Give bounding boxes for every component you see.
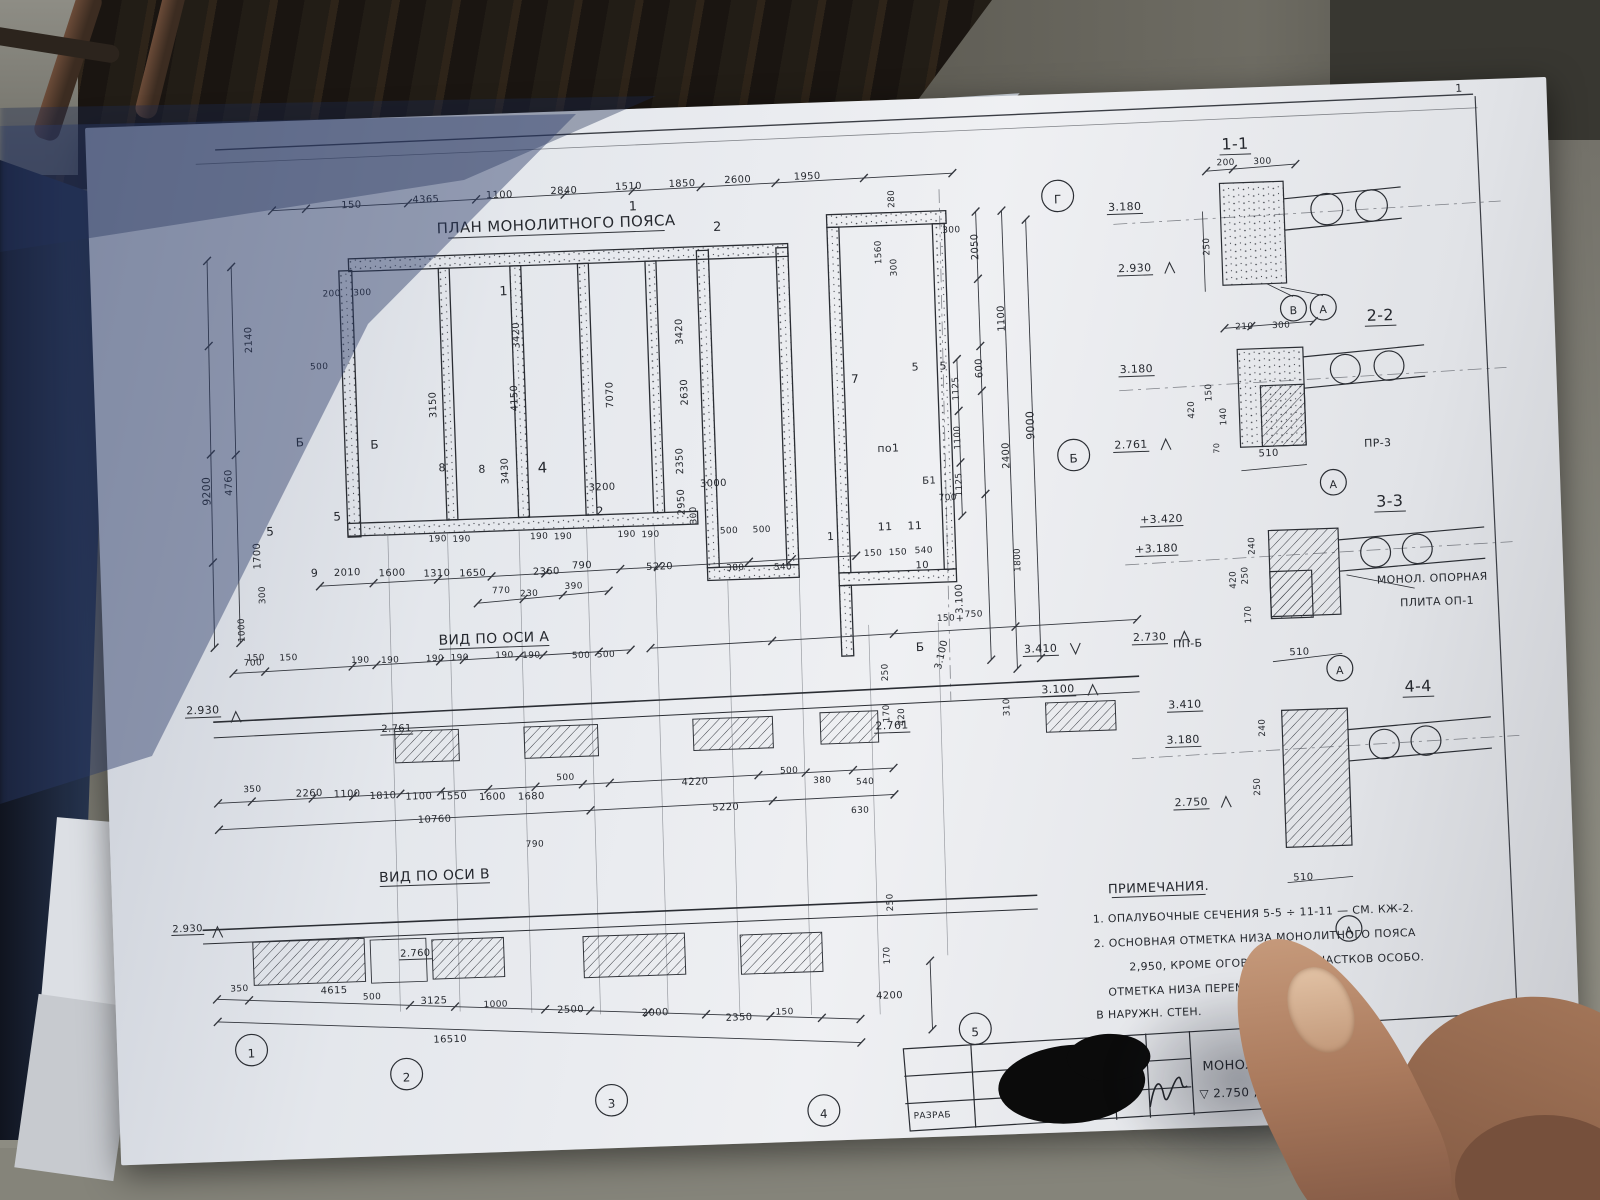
elevation-mark: 2.761 bbox=[875, 718, 909, 732]
elevation-mark: 3.180 bbox=[1166, 733, 1200, 747]
dim-label: 3125 bbox=[420, 995, 447, 1007]
dim-label: 2350 bbox=[674, 448, 686, 475]
dim-label: 1800 bbox=[1013, 548, 1024, 572]
dim-label: 2010 bbox=[334, 567, 361, 579]
dim-label: 3150 bbox=[428, 391, 440, 418]
dim-label: 2350 bbox=[725, 1012, 752, 1024]
photo-of-blueprint: ный конструктивный раствором М 300 bbox=[0, 0, 1600, 1200]
dim-label: 770 bbox=[492, 586, 511, 597]
dim-label: 4150 bbox=[509, 385, 521, 412]
axis-label: Г bbox=[1054, 192, 1062, 206]
cut-mark: Б1 bbox=[922, 475, 936, 486]
dim-label: 300 bbox=[889, 258, 900, 276]
section-title: 1-1 bbox=[1221, 134, 1249, 154]
dim-label: 2840 bbox=[550, 185, 577, 197]
dim-label: 1100 bbox=[996, 305, 1008, 332]
elevation-mark: 3.100 bbox=[933, 639, 951, 671]
dim-label: 170 bbox=[1244, 605, 1255, 623]
axis-label: А bbox=[1336, 664, 1345, 677]
cut-mark: 2 bbox=[713, 220, 722, 235]
elevation-mark: 2.730 bbox=[1133, 630, 1167, 644]
axis-label: А bbox=[1329, 478, 1338, 491]
dim-label: 1125 bbox=[951, 376, 962, 400]
cut-mark: 7 bbox=[851, 372, 859, 386]
dim-label: 1950 bbox=[794, 171, 821, 183]
dim-label: 7070 bbox=[604, 381, 616, 408]
dim-label: 1100 bbox=[953, 425, 964, 449]
dim-label: 1000 bbox=[237, 618, 248, 642]
dim-label: 250 bbox=[1253, 777, 1264, 795]
dim-label: 9200 bbox=[200, 476, 214, 505]
cut-mark: по1 bbox=[877, 441, 899, 455]
dim-label: 300 bbox=[353, 288, 372, 299]
dim-label: 5220 bbox=[646, 561, 673, 573]
cut-mark: Б bbox=[370, 438, 379, 452]
section-title: 3-3 bbox=[1376, 491, 1404, 511]
dim-label: 2400 bbox=[1001, 442, 1013, 469]
cut-mark: 5 bbox=[911, 360, 919, 373]
dim-label: 150 bbox=[1204, 383, 1215, 401]
dim-label: 1680 bbox=[518, 791, 545, 803]
dim-label: 500 bbox=[310, 362, 329, 373]
dim-label: 190 bbox=[351, 655, 370, 666]
elevation-mark: 3.410 bbox=[1168, 697, 1202, 711]
section-title: 2-2 bbox=[1366, 305, 1394, 325]
dim-label: 280 bbox=[887, 190, 898, 208]
dim-label: 150 bbox=[937, 613, 956, 624]
elevation-mark: 2.750 bbox=[1174, 795, 1208, 809]
axis-label: 1 bbox=[247, 1046, 255, 1060]
section-3-3-detail bbox=[1268, 523, 1488, 662]
dim-label: 540 bbox=[914, 546, 933, 557]
dim-label: 1100 bbox=[486, 189, 513, 201]
dim-label: 3200 bbox=[588, 482, 615, 494]
cut-mark: Б bbox=[295, 435, 304, 449]
dim-label: 240 bbox=[1247, 537, 1258, 555]
dim-label: 5220 bbox=[712, 802, 739, 814]
dim-label: 380 bbox=[813, 776, 832, 787]
dim-label: 1560 bbox=[874, 240, 885, 264]
dim-label: 70 bbox=[1212, 443, 1221, 454]
cut-mark: 1 bbox=[827, 530, 835, 543]
axis-label: 3 bbox=[607, 1097, 615, 1111]
label-underline bbox=[1220, 154, 1251, 155]
dim-label: 750 bbox=[964, 610, 983, 621]
dim-label: 210 bbox=[1235, 322, 1254, 333]
dim-label: 1700 bbox=[252, 543, 264, 570]
cut-mark: 8 bbox=[438, 461, 446, 474]
cut-mark: Б bbox=[916, 640, 925, 654]
dim-label: 2600 bbox=[724, 174, 751, 186]
dim-label: 300 bbox=[942, 225, 961, 236]
dim-label: 190 bbox=[426, 654, 445, 665]
dim-label: 4220 bbox=[681, 776, 708, 788]
dim-label: 300 bbox=[689, 506, 700, 524]
titleblock-role: РАЗРАБ bbox=[913, 1110, 951, 1121]
dim-label: 150 bbox=[279, 653, 298, 664]
axis-label: 2 bbox=[403, 1070, 411, 1084]
dim-label: 790 bbox=[572, 560, 593, 572]
dim-label: 4615 bbox=[320, 985, 347, 997]
dim-label: 250 bbox=[880, 663, 891, 681]
dim-label: 1600 bbox=[479, 791, 506, 803]
dim-label: 1600 bbox=[379, 567, 406, 579]
dim-label: 500 bbox=[363, 992, 382, 1003]
dim-label: 170 bbox=[882, 946, 893, 964]
dim-label: 540 bbox=[856, 777, 875, 788]
dim-label: 510 bbox=[1293, 872, 1314, 884]
dim-label: 1100 bbox=[405, 791, 432, 803]
dim-label: 250 bbox=[1240, 566, 1251, 584]
detail-tag: ПП-Б bbox=[1173, 637, 1203, 651]
dim-label: 250 bbox=[885, 893, 896, 911]
notes-line: 1. ОПАЛУБОЧНЫЕ СЕЧЕНИЯ 5-5 ÷ 11-11 — СМ.… bbox=[1093, 902, 1414, 926]
dim-label: 150 bbox=[341, 200, 362, 212]
cut-mark: 5 bbox=[939, 359, 947, 372]
dim-label: 190 bbox=[530, 532, 549, 543]
dim-label: 150 bbox=[775, 1007, 794, 1018]
dim-label: 1650 bbox=[459, 568, 486, 580]
dim-label: 2000 bbox=[642, 1007, 669, 1019]
axis-label: В bbox=[1289, 304, 1297, 317]
cut-mark: 11 bbox=[907, 519, 922, 532]
cut-mark: 5 bbox=[333, 509, 341, 523]
dim-label: 350 bbox=[230, 984, 249, 995]
label-underline bbox=[1374, 511, 1405, 512]
dim-label: 190 bbox=[428, 534, 447, 545]
elevation-mark: 2.760 bbox=[400, 948, 431, 960]
dim-label: 1550 bbox=[440, 791, 467, 803]
callout-text: ПЛИТА ОП-1 bbox=[1400, 594, 1474, 609]
dim-label: 510 bbox=[1289, 647, 1310, 659]
label-underline bbox=[1365, 325, 1396, 326]
elevation-mark: 3.180 bbox=[1108, 200, 1142, 214]
elevation-mark: 2.930 bbox=[1118, 261, 1152, 275]
dim-label: 700 bbox=[938, 493, 957, 504]
dim-label: 540 bbox=[774, 562, 793, 573]
dim-label: 2260 bbox=[296, 788, 323, 800]
dim-label: 2360 bbox=[533, 566, 560, 578]
dim-label: 190 bbox=[554, 532, 573, 543]
dim-label: 1510 bbox=[615, 181, 642, 193]
dim-label: 190 bbox=[450, 653, 469, 664]
elevation-mark: 2.930 bbox=[172, 923, 203, 935]
sheet-corner-mark: 1 bbox=[1455, 82, 1463, 95]
label-underline bbox=[1403, 696, 1434, 697]
dim-label: 3430 bbox=[499, 458, 511, 485]
axis-label: 4 bbox=[820, 1107, 828, 1121]
dim-label: 510 bbox=[1258, 448, 1279, 460]
dim-label: 420 bbox=[1228, 571, 1239, 589]
dim-label: 16510 bbox=[433, 1034, 467, 1046]
plan-walls bbox=[337, 211, 961, 674]
view-a-band bbox=[213, 676, 1141, 769]
dim-label: 500 bbox=[597, 650, 616, 661]
dim-label: 500 bbox=[780, 766, 799, 777]
dim-label: 190 bbox=[381, 655, 400, 666]
dim-label: 190 bbox=[617, 530, 636, 541]
dim-label: 9000 bbox=[1023, 410, 1037, 439]
plan-title: ПЛАН МОНОЛИТНОГО ПОЯСА bbox=[436, 212, 675, 237]
cut-mark: 8 bbox=[478, 463, 486, 476]
dim-label: 300 bbox=[1272, 321, 1291, 332]
dim-label: 1850 bbox=[668, 178, 695, 190]
dim-label: 190 bbox=[641, 530, 660, 541]
dim-label: 1100 bbox=[333, 789, 360, 801]
elevation-mark: 2.930 bbox=[186, 703, 220, 717]
dim-label: 10760 bbox=[418, 814, 452, 826]
dim-label: 150 bbox=[889, 548, 908, 559]
cut-mark: 4 bbox=[537, 460, 547, 477]
dim-label: 600 bbox=[974, 358, 986, 378]
dim-label: 300 bbox=[258, 586, 269, 604]
dim-label: 200 bbox=[1216, 158, 1235, 169]
dim-label: 790 bbox=[526, 839, 545, 850]
dim-label: 190 bbox=[495, 650, 514, 661]
dim-label: 2630 bbox=[679, 379, 691, 406]
dim-label: 3420 bbox=[674, 318, 686, 345]
dim-label: 500 bbox=[753, 525, 772, 536]
dim-label: 310 bbox=[1002, 698, 1013, 716]
elevation-mark: 3.410 bbox=[1024, 642, 1058, 656]
dim-label: 190 bbox=[452, 534, 471, 545]
section-1-1-detail bbox=[1202, 177, 1405, 299]
cut-mark: 10 bbox=[915, 560, 929, 571]
elevation-mark: 2.761 bbox=[381, 723, 412, 735]
dim-label: 1810 bbox=[369, 790, 396, 802]
elevation-mark: 2.761 bbox=[1114, 438, 1148, 452]
dim-label: 150 bbox=[864, 548, 883, 559]
dim-label: 190 bbox=[522, 650, 541, 661]
dim-label: 380 bbox=[726, 563, 745, 574]
dim-label: 3000 bbox=[700, 478, 727, 490]
dim-label: 500 bbox=[556, 773, 575, 784]
dim-label: 4200 bbox=[876, 990, 903, 1002]
dim-label: 2950 bbox=[676, 489, 688, 516]
callout-text: МОНОЛ. ОПОРНАЯ bbox=[1377, 570, 1488, 587]
dim-label: 240 bbox=[1257, 719, 1268, 737]
cut-mark: 5 bbox=[266, 525, 274, 539]
cut-mark: 9 bbox=[311, 567, 319, 580]
dim-label: 2140 bbox=[243, 326, 255, 353]
elevation-mark: +3.180 bbox=[1135, 541, 1178, 555]
dim-label: 300 bbox=[1253, 157, 1272, 168]
dim-label: 250 bbox=[1202, 237, 1213, 255]
dim-label: 390 bbox=[564, 581, 583, 592]
dim-label: 2050 bbox=[969, 233, 981, 260]
dim-label: 630 bbox=[851, 806, 870, 817]
elevation-mark: +3.420 bbox=[1140, 512, 1183, 526]
section-title: 4-4 bbox=[1404, 676, 1432, 696]
dim-label: 420 bbox=[1187, 401, 1198, 419]
dim-label: 4760 bbox=[223, 469, 235, 496]
dim-label: 500 bbox=[572, 651, 591, 662]
cut-mark: 11 bbox=[878, 520, 893, 533]
dim-label: 1000 bbox=[483, 999, 508, 1010]
dim-label: 2500 bbox=[557, 1004, 584, 1016]
axis-label: Б bbox=[1069, 451, 1078, 465]
cut-mark: 1 bbox=[499, 284, 508, 299]
cut-mark: 1 bbox=[629, 199, 638, 214]
dim-label: 4365 bbox=[412, 194, 439, 206]
elevation-mark: 3.180 bbox=[1119, 362, 1153, 376]
dim-label: 500 bbox=[720, 526, 739, 537]
cut-mark: 2 bbox=[596, 504, 604, 518]
dim-label: 350 bbox=[243, 785, 262, 796]
section-4-4-detail bbox=[1282, 703, 1497, 883]
view-b-band bbox=[202, 895, 1039, 993]
detail-tag: ПР-3 bbox=[1364, 436, 1392, 450]
elevation-mark: 3.100 bbox=[1041, 682, 1075, 696]
dim-label: 150 bbox=[246, 653, 265, 664]
dim-label: 140 bbox=[1219, 407, 1230, 425]
dim-label: 230 bbox=[520, 589, 539, 600]
dim-label: 1310 bbox=[423, 568, 450, 580]
axis-label: А bbox=[1319, 303, 1328, 316]
dim-label: 200 bbox=[322, 289, 341, 300]
axis-label: 5 bbox=[971, 1025, 979, 1039]
dim-label: 3420 bbox=[511, 322, 523, 349]
